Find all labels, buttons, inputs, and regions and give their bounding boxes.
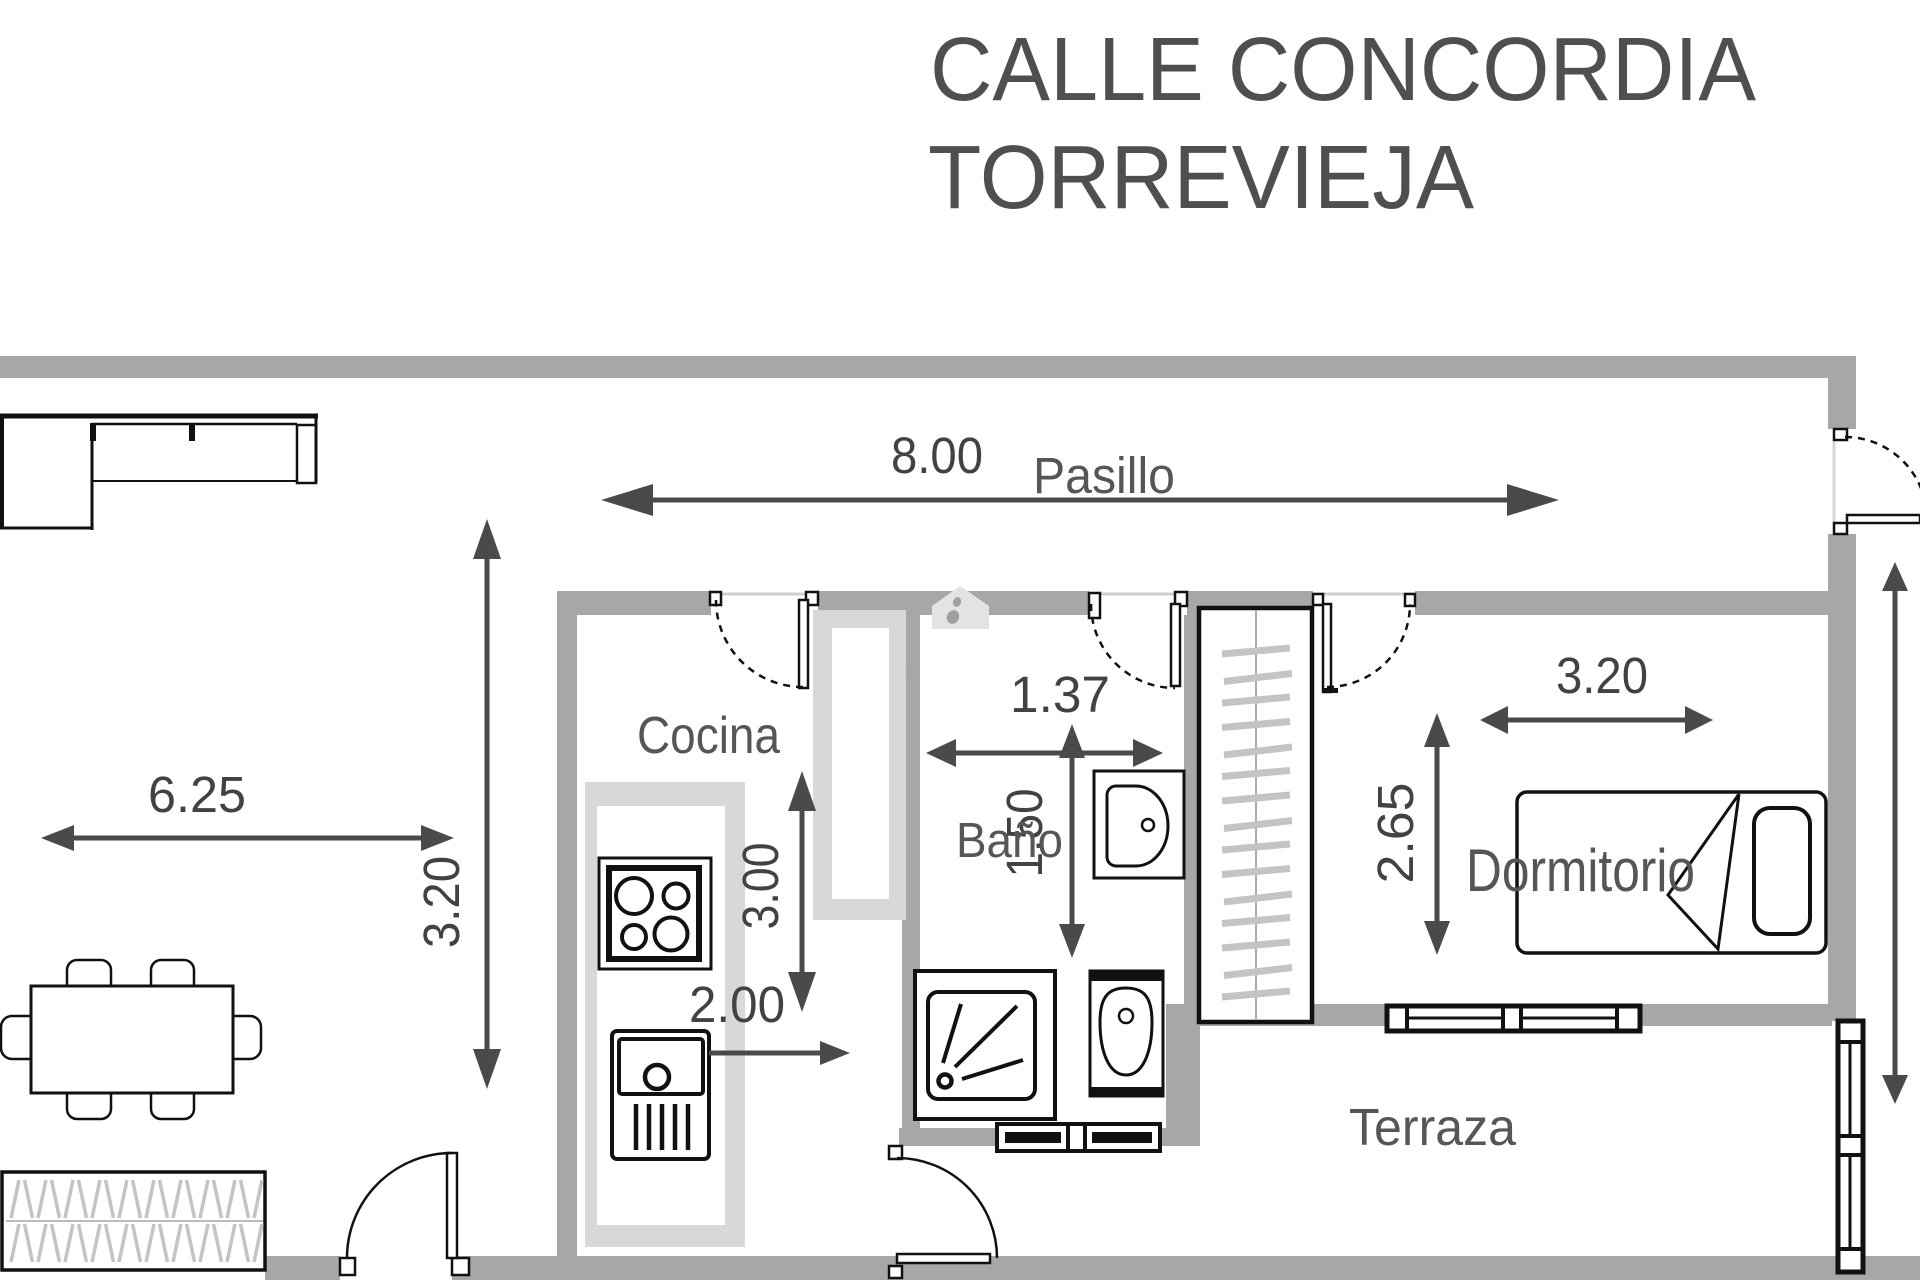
svg-text:8.00: 8.00 [891,427,983,484]
svg-text:Cocina: Cocina [637,707,780,765]
svg-text:Pasillo: Pasillo [1033,447,1175,504]
svg-text:2.00: 2.00 [689,976,785,1033]
svg-text:1.37: 1.37 [1010,666,1110,723]
svg-text:Terraza: Terraza [1349,1099,1516,1157]
svg-text:Dormitorio: Dormitorio [1466,837,1695,904]
svg-text:3.20: 3.20 [413,856,470,948]
svg-text:2.65: 2.65 [1367,783,1424,884]
svg-text:3.20: 3.20 [1556,647,1648,704]
svg-text:CALLE CONCORDIA: CALLE CONCORDIA [930,20,1756,120]
svg-text:3.00: 3.00 [732,843,789,930]
svg-text:6.25: 6.25 [148,766,246,823]
svg-text:TORREVIEJA: TORREVIEJA [928,128,1474,228]
svg-text:Baño: Baño [956,814,1063,868]
